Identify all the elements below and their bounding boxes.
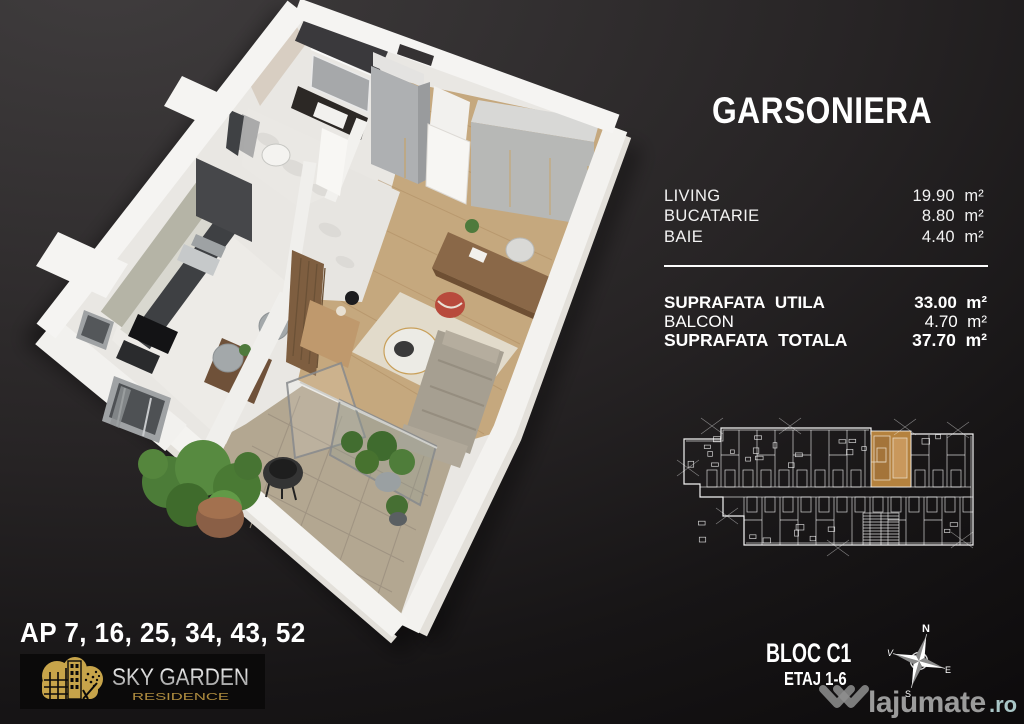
svg-text:N: N [922, 623, 930, 635]
svg-text:lajumate: lajumate [868, 686, 986, 719]
svg-text:RESIDENCE: RESIDENCE [132, 691, 229, 703]
svg-text:SKY GARDEN: SKY GARDEN [112, 664, 249, 691]
svg-text:E: E [945, 665, 951, 675]
svg-text:.ro: .ro [989, 692, 1017, 717]
svg-text:V: V [887, 648, 894, 658]
